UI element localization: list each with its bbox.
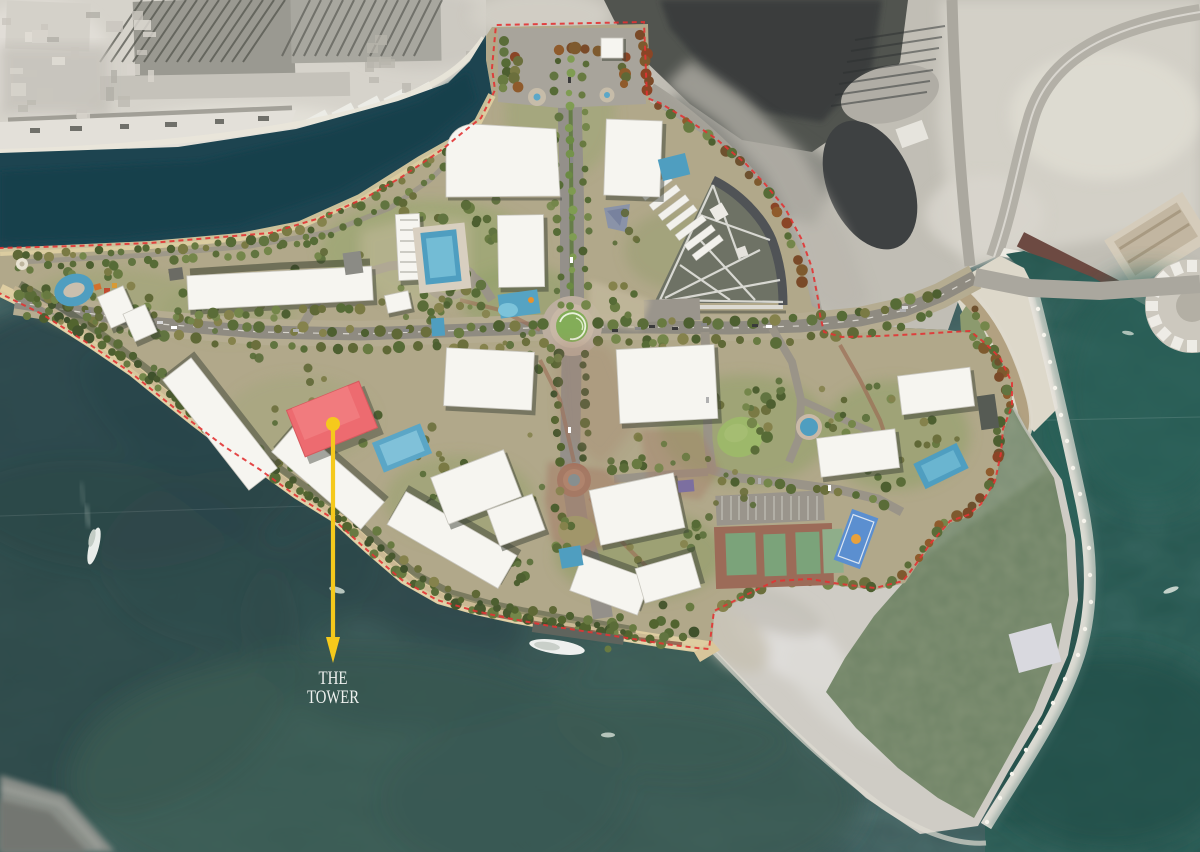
svg-text:TOWER: TOWER bbox=[307, 687, 359, 708]
svg-text:THE: THE bbox=[319, 668, 348, 689]
